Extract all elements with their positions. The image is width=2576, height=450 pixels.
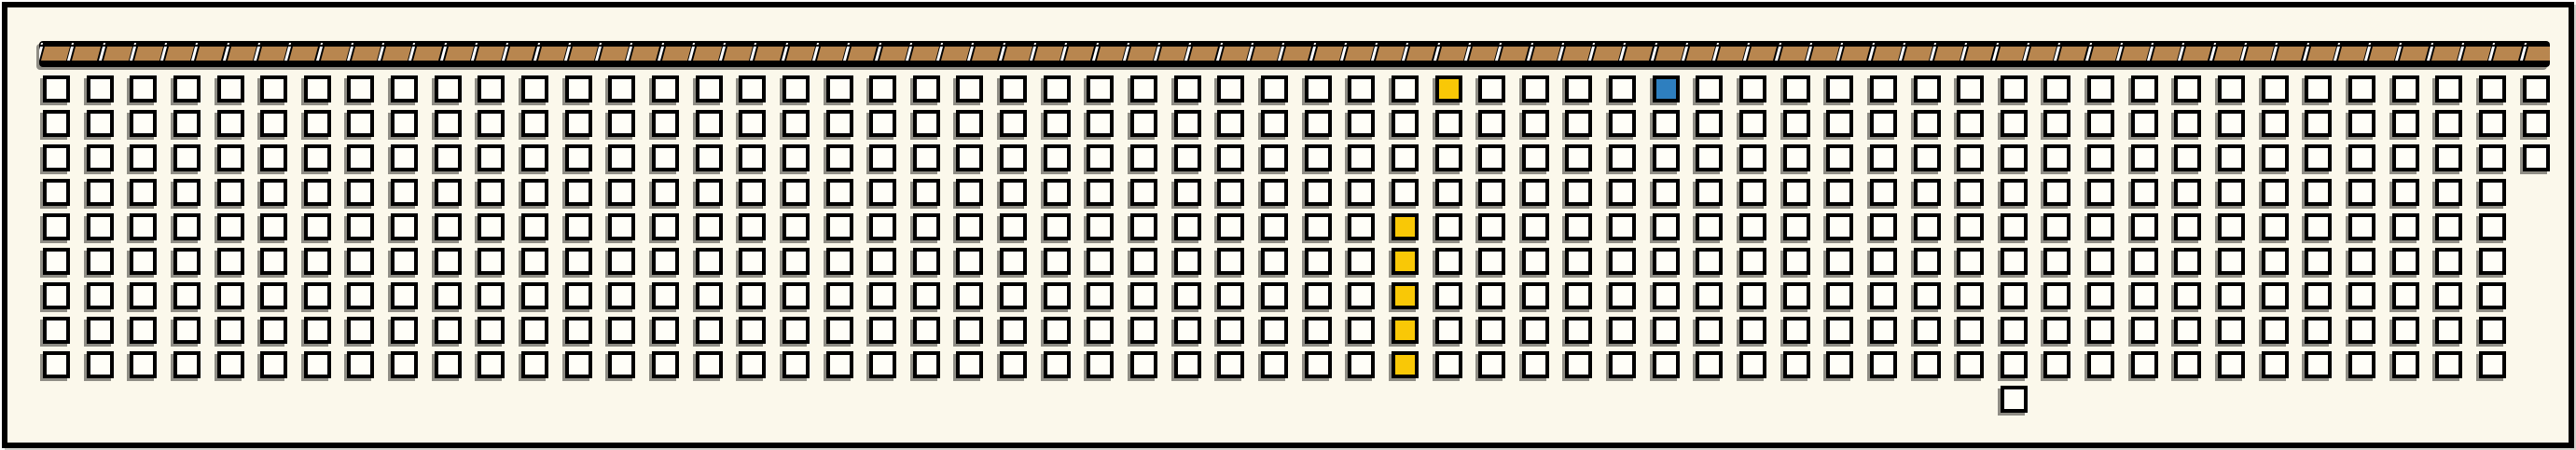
facedown-card[interactable] (43, 144, 70, 171)
facedown-card[interactable] (347, 282, 374, 309)
facedown-card[interactable] (782, 75, 810, 102)
facedown-card[interactable] (1348, 213, 1375, 240)
facedown-card[interactable] (391, 351, 418, 378)
facedown-card[interactable] (435, 317, 462, 344)
facedown-card[interactable] (1609, 317, 1636, 344)
facedown-card[interactable] (304, 213, 331, 240)
facedown-card[interactable] (956, 110, 983, 137)
facedown-card[interactable] (1609, 75, 1636, 102)
facedown-card[interactable] (608, 213, 635, 240)
facedown-card[interactable] (565, 110, 592, 137)
facedown-card[interactable] (696, 282, 723, 309)
facedown-card[interactable] (1696, 144, 1723, 171)
facedown-card[interactable] (478, 213, 505, 240)
facedown-card[interactable] (1217, 144, 1244, 171)
facedown-card[interactable] (2305, 179, 2332, 206)
facedown-card[interactable] (1435, 213, 1462, 240)
facedown-card[interactable] (2087, 248, 2114, 275)
facedown-card[interactable] (1130, 351, 1157, 378)
facedown-card[interactable] (2479, 248, 2506, 275)
facedown-card[interactable] (956, 317, 983, 344)
facedown-card[interactable] (173, 351, 201, 378)
facedown-card[interactable] (1261, 317, 1288, 344)
facedown-card[interactable] (1261, 75, 1288, 102)
facedown-card[interactable] (1826, 317, 1853, 344)
facedown-card[interactable] (652, 317, 679, 344)
facedown-card[interactable] (1392, 75, 1419, 102)
facedown-card[interactable] (130, 110, 157, 137)
facedown-card[interactable] (173, 179, 201, 206)
highlighted-card-yellow[interactable] (1392, 213, 1419, 240)
facedown-card[interactable] (521, 213, 548, 240)
facedown-card[interactable] (782, 317, 810, 344)
facedown-card[interactable] (521, 144, 548, 171)
facedown-card[interactable] (1783, 282, 1810, 309)
facedown-card[interactable] (391, 282, 418, 309)
facedown-card[interactable] (1826, 248, 1853, 275)
facedown-card[interactable] (696, 248, 723, 275)
facedown-card[interactable] (1565, 282, 1592, 309)
facedown-card[interactable] (1348, 179, 1375, 206)
facedown-card[interactable] (1044, 144, 1071, 171)
facedown-card[interactable] (1957, 75, 1984, 102)
facedown-card[interactable] (1305, 144, 1332, 171)
facedown-card[interactable] (1914, 144, 1941, 171)
facedown-card[interactable] (2174, 248, 2201, 275)
facedown-card[interactable] (87, 110, 114, 137)
facedown-card[interactable] (696, 75, 723, 102)
facedown-card[interactable] (2479, 110, 2506, 137)
facedown-card[interactable] (1087, 75, 1114, 102)
facedown-card[interactable] (2043, 282, 2070, 309)
facedown-card[interactable] (347, 179, 374, 206)
facedown-card[interactable] (652, 75, 679, 102)
facedown-card[interactable] (1435, 144, 1462, 171)
facedown-card[interactable] (87, 282, 114, 309)
facedown-card[interactable] (1174, 351, 1201, 378)
facedown-card[interactable] (478, 110, 505, 137)
facedown-card[interactable] (2435, 282, 2462, 309)
facedown-card[interactable] (2305, 144, 2332, 171)
facedown-card[interactable] (1870, 282, 1897, 309)
facedown-card[interactable] (2262, 282, 2289, 309)
facedown-card[interactable] (43, 282, 70, 309)
facedown-card[interactable] (2087, 75, 2114, 102)
facedown-card[interactable] (696, 179, 723, 206)
facedown-card[interactable] (1957, 213, 1984, 240)
facedown-card[interactable] (1000, 317, 1027, 344)
facedown-card[interactable] (1348, 282, 1375, 309)
facedown-card[interactable] (2348, 110, 2375, 137)
facedown-card[interactable] (913, 144, 940, 171)
facedown-card[interactable] (1044, 282, 1071, 309)
facedown-card[interactable] (1565, 351, 1592, 378)
facedown-card[interactable] (1478, 248, 1505, 275)
facedown-card[interactable] (304, 110, 331, 137)
facedown-card[interactable] (1957, 144, 1984, 171)
facedown-card[interactable] (1305, 179, 1332, 206)
facedown-card[interactable] (1870, 110, 1897, 137)
facedown-card[interactable] (956, 282, 983, 309)
facedown-card[interactable] (1044, 110, 1071, 137)
facedown-card[interactable] (1130, 213, 1157, 240)
facedown-card[interactable] (478, 179, 505, 206)
facedown-card[interactable] (1217, 110, 1244, 137)
highlighted-card-yellow[interactable] (1392, 317, 1419, 344)
facedown-card[interactable] (2262, 144, 2289, 171)
facedown-card[interactable] (260, 75, 287, 102)
facedown-card[interactable] (435, 110, 462, 137)
highlighted-card-yellow[interactable] (1392, 351, 1419, 378)
facedown-card[interactable] (782, 282, 810, 309)
facedown-card[interactable] (1565, 110, 1592, 137)
facedown-card[interactable] (913, 248, 940, 275)
facedown-card[interactable] (478, 144, 505, 171)
facedown-card[interactable] (869, 179, 896, 206)
facedown-card[interactable] (1305, 75, 1332, 102)
facedown-card[interactable] (435, 179, 462, 206)
facedown-card[interactable] (43, 179, 70, 206)
facedown-card[interactable] (1783, 179, 1810, 206)
facedown-card[interactable] (608, 317, 635, 344)
facedown-card[interactable] (1565, 144, 1592, 171)
facedown-card[interactable] (1870, 351, 1897, 378)
facedown-card[interactable] (869, 351, 896, 378)
facedown-card[interactable] (1739, 75, 1766, 102)
facedown-card[interactable] (1696, 317, 1723, 344)
facedown-card[interactable] (435, 213, 462, 240)
facedown-card[interactable] (1696, 351, 1723, 378)
facedown-card[interactable] (2218, 351, 2245, 378)
facedown-card[interactable] (1739, 351, 1766, 378)
facedown-card[interactable] (1478, 351, 1505, 378)
facedown-card[interactable] (2131, 351, 2158, 378)
facedown-card[interactable] (2392, 179, 2419, 206)
facedown-card[interactable] (1000, 282, 1027, 309)
facedown-card[interactable] (478, 317, 505, 344)
facedown-card[interactable] (2262, 110, 2289, 137)
facedown-card[interactable] (43, 248, 70, 275)
facedown-card[interactable] (1087, 213, 1114, 240)
facedown-card[interactable] (1261, 110, 1288, 137)
facedown-card[interactable] (478, 282, 505, 309)
facedown-card[interactable] (2001, 144, 2028, 171)
highlighted-card-blue[interactable] (1653, 75, 1680, 102)
facedown-card[interactable] (608, 282, 635, 309)
facedown-card[interactable] (1087, 317, 1114, 344)
facedown-card[interactable] (913, 282, 940, 309)
facedown-card[interactable] (2131, 317, 2158, 344)
facedown-card[interactable] (1087, 179, 1114, 206)
facedown-card[interactable] (521, 351, 548, 378)
facedown-card[interactable] (1870, 144, 1897, 171)
facedown-card[interactable] (1478, 75, 1505, 102)
facedown-card[interactable] (2131, 179, 2158, 206)
facedown-card[interactable] (173, 144, 201, 171)
facedown-card[interactable] (869, 248, 896, 275)
facedown-card[interactable] (173, 282, 201, 309)
facedown-card[interactable] (1174, 282, 1201, 309)
facedown-card[interactable] (1087, 282, 1114, 309)
facedown-card[interactable] (2479, 351, 2506, 378)
facedown-card[interactable] (2479, 282, 2506, 309)
facedown-card[interactable] (1000, 248, 1027, 275)
facedown-card[interactable] (1870, 179, 1897, 206)
facedown-card[interactable] (1783, 248, 1810, 275)
facedown-card[interactable] (521, 110, 548, 137)
facedown-card[interactable] (1348, 144, 1375, 171)
facedown-card[interactable] (391, 317, 418, 344)
facedown-card[interactable] (739, 110, 766, 137)
facedown-card[interactable] (1261, 144, 1288, 171)
facedown-card[interactable] (652, 213, 679, 240)
facedown-card[interactable] (1522, 213, 1549, 240)
facedown-card[interactable] (2435, 248, 2462, 275)
detached-card[interactable] (2001, 386, 2028, 413)
facedown-card[interactable] (1914, 248, 1941, 275)
facedown-card[interactable] (130, 351, 157, 378)
facedown-card[interactable] (2087, 351, 2114, 378)
facedown-card[interactable] (1696, 282, 1723, 309)
facedown-card[interactable] (435, 351, 462, 378)
facedown-card[interactable] (2479, 179, 2506, 206)
facedown-card[interactable] (1522, 179, 1549, 206)
facedown-card[interactable] (2174, 317, 2201, 344)
facedown-card[interactable] (43, 351, 70, 378)
facedown-card[interactable] (1217, 179, 1244, 206)
facedown-card[interactable] (2043, 248, 2070, 275)
facedown-card[interactable] (87, 213, 114, 240)
facedown-card[interactable] (2435, 110, 2462, 137)
facedown-card[interactable] (521, 317, 548, 344)
facedown-card[interactable] (1305, 351, 1332, 378)
facedown-card[interactable] (521, 75, 548, 102)
facedown-card[interactable] (1435, 110, 1462, 137)
facedown-card[interactable] (565, 282, 592, 309)
facedown-card[interactable] (87, 248, 114, 275)
facedown-card[interactable] (2218, 213, 2245, 240)
facedown-card[interactable] (1653, 110, 1680, 137)
facedown-card[interactable] (739, 317, 766, 344)
facedown-card[interactable] (696, 317, 723, 344)
facedown-card[interactable] (260, 351, 287, 378)
facedown-card[interactable] (1217, 351, 1244, 378)
facedown-card[interactable] (2043, 317, 2070, 344)
facedown-card[interactable] (1914, 213, 1941, 240)
facedown-card[interactable] (130, 248, 157, 275)
facedown-card[interactable] (1087, 110, 1114, 137)
facedown-card[interactable] (2043, 179, 2070, 206)
facedown-card[interactable] (826, 317, 853, 344)
facedown-card[interactable] (1348, 110, 1375, 137)
facedown-card[interactable] (1739, 213, 1766, 240)
facedown-card[interactable] (130, 144, 157, 171)
facedown-card[interactable] (2348, 179, 2375, 206)
facedown-card[interactable] (826, 75, 853, 102)
facedown-card[interactable] (521, 179, 548, 206)
facedown-card[interactable] (1392, 144, 1419, 171)
facedown-card[interactable] (913, 351, 940, 378)
facedown-card[interactable] (739, 213, 766, 240)
facedown-card[interactable] (1739, 144, 1766, 171)
facedown-card[interactable] (1957, 110, 1984, 137)
facedown-card[interactable] (1653, 144, 1680, 171)
facedown-card[interactable] (2174, 282, 2201, 309)
facedown-card[interactable] (1653, 179, 1680, 206)
facedown-card[interactable] (1870, 213, 1897, 240)
facedown-card[interactable] (1957, 179, 1984, 206)
facedown-card[interactable] (2087, 110, 2114, 137)
facedown-card[interactable] (1957, 248, 1984, 275)
facedown-card[interactable] (1305, 317, 1332, 344)
facedown-card[interactable] (87, 75, 114, 102)
facedown-card[interactable] (2262, 213, 2289, 240)
facedown-card[interactable] (869, 110, 896, 137)
facedown-card[interactable] (1217, 248, 1244, 275)
facedown-card[interactable] (1478, 282, 1505, 309)
facedown-card[interactable] (2392, 317, 2419, 344)
facedown-card[interactable] (347, 351, 374, 378)
facedown-card[interactable] (1870, 75, 1897, 102)
facedown-card[interactable] (1609, 179, 1636, 206)
facedown-card[interactable] (826, 282, 853, 309)
facedown-card[interactable] (1914, 282, 1941, 309)
facedown-card[interactable] (2262, 179, 2289, 206)
facedown-card[interactable] (2348, 144, 2375, 171)
facedown-card[interactable] (1783, 317, 1810, 344)
facedown-card[interactable] (1653, 248, 1680, 275)
facedown-card[interactable] (1174, 179, 1201, 206)
facedown-card[interactable] (217, 213, 244, 240)
facedown-card[interactable] (2305, 110, 2332, 137)
facedown-card[interactable] (826, 213, 853, 240)
facedown-card[interactable] (696, 110, 723, 137)
facedown-card[interactable] (2218, 282, 2245, 309)
facedown-card[interactable] (2305, 213, 2332, 240)
facedown-card[interactable] (2001, 282, 2028, 309)
facedown-card[interactable] (1478, 317, 1505, 344)
facedown-card[interactable] (956, 179, 983, 206)
facedown-card[interactable] (1565, 248, 1592, 275)
facedown-card[interactable] (1130, 75, 1157, 102)
facedown-card[interactable] (1261, 351, 1288, 378)
facedown-card[interactable] (2043, 351, 2070, 378)
facedown-card[interactable] (1870, 317, 1897, 344)
facedown-card[interactable] (2348, 282, 2375, 309)
facedown-card[interactable] (2001, 75, 2028, 102)
facedown-card[interactable] (435, 248, 462, 275)
facedown-card[interactable] (1305, 110, 1332, 137)
facedown-card[interactable] (304, 248, 331, 275)
facedown-card[interactable] (2262, 351, 2289, 378)
facedown-card[interactable] (1044, 213, 1071, 240)
facedown-card[interactable] (1087, 144, 1114, 171)
facedown-card[interactable] (956, 75, 983, 102)
facedown-card[interactable] (1739, 179, 1766, 206)
facedown-card[interactable] (782, 351, 810, 378)
facedown-card[interactable] (2523, 75, 2550, 102)
facedown-card[interactable] (173, 110, 201, 137)
facedown-card[interactable] (1609, 213, 1636, 240)
facedown-card[interactable] (43, 317, 70, 344)
facedown-card[interactable] (2087, 213, 2114, 240)
facedown-card[interactable] (1392, 110, 1419, 137)
facedown-card[interactable] (217, 317, 244, 344)
facedown-card[interactable] (826, 144, 853, 171)
facedown-card[interactable] (1000, 75, 1027, 102)
facedown-card[interactable] (2131, 213, 2158, 240)
facedown-card[interactable] (1914, 179, 1941, 206)
facedown-card[interactable] (1696, 213, 1723, 240)
facedown-card[interactable] (1826, 179, 1853, 206)
facedown-card[interactable] (391, 213, 418, 240)
facedown-card[interactable] (1914, 110, 1941, 137)
facedown-card[interactable] (1826, 351, 1853, 378)
facedown-card[interactable] (1174, 213, 1201, 240)
facedown-card[interactable] (739, 144, 766, 171)
facedown-card[interactable] (304, 282, 331, 309)
facedown-card[interactable] (304, 144, 331, 171)
facedown-card[interactable] (87, 179, 114, 206)
facedown-card[interactable] (1783, 110, 1810, 137)
facedown-card[interactable] (1435, 351, 1462, 378)
facedown-card[interactable] (1174, 144, 1201, 171)
facedown-card[interactable] (2348, 213, 2375, 240)
facedown-card[interactable] (1653, 351, 1680, 378)
facedown-card[interactable] (1174, 75, 1201, 102)
facedown-card[interactable] (2435, 351, 2462, 378)
facedown-card[interactable] (2392, 213, 2419, 240)
facedown-card[interactable] (869, 144, 896, 171)
facedown-card[interactable] (608, 75, 635, 102)
facedown-card[interactable] (1435, 282, 1462, 309)
facedown-card[interactable] (782, 179, 810, 206)
facedown-card[interactable] (1696, 75, 1723, 102)
facedown-card[interactable] (2479, 213, 2506, 240)
facedown-card[interactable] (1044, 179, 1071, 206)
facedown-card[interactable] (652, 351, 679, 378)
facedown-card[interactable] (2218, 179, 2245, 206)
facedown-card[interactable] (739, 248, 766, 275)
facedown-card[interactable] (565, 179, 592, 206)
facedown-card[interactable] (391, 248, 418, 275)
facedown-card[interactable] (652, 282, 679, 309)
facedown-card[interactable] (217, 144, 244, 171)
facedown-card[interactable] (1565, 317, 1592, 344)
facedown-card[interactable] (696, 213, 723, 240)
facedown-card[interactable] (1653, 282, 1680, 309)
facedown-card[interactable] (869, 317, 896, 344)
facedown-card[interactable] (1783, 144, 1810, 171)
facedown-card[interactable] (1609, 282, 1636, 309)
facedown-card[interactable] (1174, 248, 1201, 275)
facedown-card[interactable] (391, 144, 418, 171)
facedown-card[interactable] (2218, 248, 2245, 275)
facedown-card[interactable] (521, 248, 548, 275)
facedown-card[interactable] (2174, 144, 2201, 171)
facedown-card[interactable] (2001, 179, 2028, 206)
facedown-card[interactable] (347, 75, 374, 102)
facedown-card[interactable] (1174, 110, 1201, 137)
facedown-card[interactable] (826, 110, 853, 137)
facedown-card[interactable] (2001, 317, 2028, 344)
facedown-card[interactable] (2087, 317, 2114, 344)
facedown-card[interactable] (1478, 144, 1505, 171)
facedown-card[interactable] (2523, 144, 2550, 171)
facedown-card[interactable] (739, 351, 766, 378)
facedown-card[interactable] (304, 75, 331, 102)
facedown-card[interactable] (2001, 248, 2028, 275)
